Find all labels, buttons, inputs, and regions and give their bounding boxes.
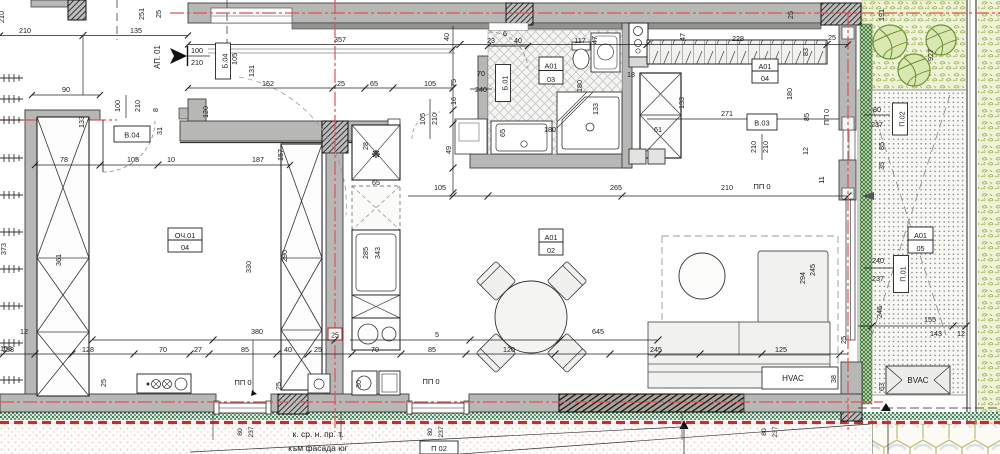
svg-text:245: 245 (875, 306, 884, 318)
svg-text:25: 25 (274, 382, 283, 390)
svg-text:8: 8 (151, 108, 160, 112)
svg-text:05: 05 (916, 244, 924, 253)
svg-text:180: 180 (575, 80, 584, 92)
svg-text:105: 105 (434, 183, 446, 192)
svg-text:158: 158 (0, 344, 12, 353)
svg-text:85: 85 (241, 345, 249, 354)
svg-text:180: 180 (544, 125, 556, 134)
svg-text:78: 78 (60, 155, 68, 164)
svg-text:40: 40 (514, 36, 522, 45)
svg-text:ПП 0: ПП 0 (422, 377, 439, 386)
svg-text:6: 6 (503, 29, 507, 38)
svg-text:A01: A01 (545, 233, 558, 242)
svg-text:30: 30 (354, 380, 363, 388)
svg-text:5: 5 (435, 330, 439, 339)
svg-text:361: 361 (54, 254, 63, 266)
svg-text:A01: A01 (914, 231, 927, 240)
svg-text:105: 105 (230, 53, 239, 65)
svg-text:927: 927 (926, 49, 935, 61)
svg-text:80: 80 (237, 428, 244, 436)
svg-text:210: 210 (749, 141, 758, 153)
svg-text:АП. 01: АП. 01 (153, 45, 162, 69)
svg-text:120: 120 (503, 345, 515, 354)
svg-text:03: 03 (547, 75, 555, 84)
svg-text:75: 75 (449, 79, 458, 87)
svg-text:12: 12 (20, 327, 28, 336)
svg-text:271: 271 (721, 109, 733, 118)
svg-text:Б.04: Б.04 (221, 54, 230, 69)
svg-text:85: 85 (428, 345, 436, 354)
svg-text:357: 357 (334, 35, 346, 44)
svg-text:38: 38 (829, 375, 838, 383)
svg-text:12: 12 (957, 329, 965, 338)
svg-text:105: 105 (418, 113, 427, 125)
svg-text:25: 25 (331, 333, 339, 340)
svg-text:380: 380 (251, 327, 263, 336)
svg-text:187: 187 (252, 155, 264, 164)
svg-text:BVAC: BVAC (907, 376, 928, 385)
svg-text:90: 90 (62, 85, 70, 94)
svg-text:70: 70 (159, 345, 167, 354)
svg-text:228: 228 (732, 34, 744, 43)
svg-text:49: 49 (444, 146, 453, 154)
svg-text:02: 02 (547, 246, 555, 255)
svg-text:157: 157 (276, 149, 285, 161)
svg-text:25: 25 (99, 379, 108, 387)
svg-text:237: 237 (772, 426, 779, 438)
svg-text:63: 63 (877, 383, 886, 391)
svg-text:210: 210 (19, 26, 31, 35)
svg-text:65: 65 (498, 129, 507, 137)
svg-text:373: 373 (0, 243, 8, 255)
svg-text:40: 40 (442, 33, 451, 41)
svg-text:31: 31 (155, 127, 164, 135)
svg-text:❋: ❋ (371, 149, 380, 161)
svg-text:A01: A01 (545, 61, 558, 70)
svg-text:100: 100 (113, 100, 122, 112)
svg-text:28: 28 (361, 142, 370, 150)
svg-text:125: 125 (775, 345, 787, 354)
svg-text:133: 133 (677, 97, 686, 109)
svg-text:10: 10 (167, 155, 175, 164)
svg-text:11: 11 (817, 176, 826, 183)
svg-text:25: 25 (786, 11, 795, 19)
svg-text:П.01: П.01 (899, 266, 908, 281)
svg-text:285: 285 (361, 247, 370, 259)
svg-text:65: 65 (372, 178, 380, 187)
svg-text:23: 23 (487, 36, 495, 45)
svg-text:Б.01: Б.01 (501, 76, 510, 91)
svg-text:143: 143 (930, 329, 942, 338)
svg-text:237: 237 (438, 426, 445, 438)
svg-text:245: 245 (650, 345, 662, 354)
svg-text:265: 265 (610, 183, 622, 192)
svg-text:12: 12 (801, 147, 810, 155)
svg-text:16: 16 (449, 97, 458, 105)
svg-text:40: 40 (284, 345, 292, 354)
svg-text:HVAC: HVAC (782, 374, 804, 383)
svg-text:128: 128 (82, 345, 94, 354)
svg-text:240: 240 (872, 256, 884, 265)
svg-text:290: 290 (280, 250, 289, 262)
svg-text:330: 330 (244, 261, 253, 273)
svg-text:162: 162 (262, 79, 274, 88)
svg-text:ПП 0: ПП 0 (753, 182, 770, 191)
svg-text:133: 133 (591, 103, 600, 115)
svg-text:645: 645 (592, 327, 604, 336)
svg-text:85: 85 (877, 142, 886, 150)
svg-text:80: 80 (873, 105, 881, 114)
svg-text:210: 210 (133, 100, 142, 112)
svg-text:237: 237 (871, 120, 883, 129)
svg-text:210: 210 (191, 58, 203, 67)
svg-text:105: 105 (424, 79, 436, 88)
svg-text:105: 105 (127, 155, 139, 164)
svg-text:100: 100 (191, 46, 203, 55)
svg-text:18: 18 (627, 70, 635, 79)
svg-text:04: 04 (761, 74, 769, 83)
svg-text:25: 25 (314, 345, 322, 354)
svg-text:70: 70 (371, 345, 379, 354)
svg-text:240: 240 (475, 85, 487, 94)
svg-text:25: 25 (828, 33, 836, 42)
svg-text:25: 25 (839, 336, 848, 344)
svg-text:117: 117 (574, 36, 585, 45)
svg-text:180: 180 (785, 88, 794, 100)
svg-text:П 02: П 02 (431, 444, 447, 453)
svg-text:210: 210 (430, 113, 439, 125)
svg-text:343: 343 (373, 247, 382, 259)
svg-text:04: 04 (181, 243, 189, 252)
svg-text:245: 245 (808, 264, 817, 276)
svg-text:25: 25 (337, 79, 345, 88)
svg-text:210: 210 (721, 183, 733, 192)
svg-text:25: 25 (154, 10, 163, 18)
svg-text:65: 65 (370, 79, 378, 88)
svg-text:ОЧ.01: ОЧ.01 (175, 231, 196, 240)
svg-text:83: 83 (801, 48, 810, 56)
svg-text:251: 251 (137, 8, 146, 20)
svg-text:В.03: В.03 (754, 119, 769, 128)
svg-text:27: 27 (194, 345, 202, 354)
svg-text:70: 70 (477, 69, 485, 78)
svg-text:237: 237 (872, 274, 884, 283)
svg-text:135: 135 (130, 26, 142, 35)
svg-text:П.02: П.02 (898, 111, 907, 126)
svg-text:85: 85 (802, 113, 811, 121)
svg-text:В.04: В.04 (124, 131, 139, 140)
svg-text:133: 133 (77, 116, 86, 128)
svg-text:ПП 0: ПП 0 (822, 109, 831, 125)
svg-text:155: 155 (924, 315, 936, 324)
svg-text:237: 237 (248, 426, 255, 438)
svg-text:120: 120 (201, 106, 210, 118)
svg-text:к. ср. н. пр. т.: к. ср. н. пр. т. (293, 429, 344, 439)
svg-text:294: 294 (798, 272, 807, 284)
svg-text:47: 47 (590, 36, 599, 44)
svg-text:131: 131 (247, 65, 256, 77)
svg-text:191: 191 (877, 9, 886, 21)
svg-text:35: 35 (877, 162, 886, 170)
svg-text:A01: A01 (759, 62, 772, 71)
svg-text:47: 47 (678, 33, 687, 41)
svg-text:80: 80 (427, 428, 434, 436)
svg-text:61: 61 (654, 125, 662, 134)
svg-text:ПП 0: ПП 0 (234, 378, 251, 387)
svg-text:210: 210 (0, 11, 6, 23)
